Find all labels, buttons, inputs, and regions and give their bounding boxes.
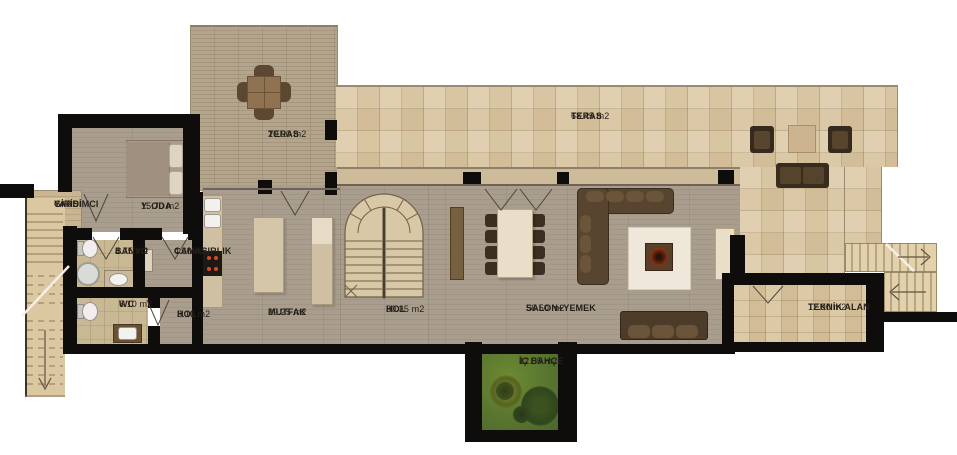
sofa-cushion (606, 191, 624, 202)
sofa-cushion (652, 325, 674, 338)
room-area: 68.45 m2 (571, 111, 609, 123)
room-area: 4.75 m2 (115, 246, 148, 258)
dining-chair (531, 230, 545, 243)
sofa-cushion (580, 255, 591, 273)
kitchen-sink-icon (204, 214, 221, 228)
toilet-icon (82, 302, 98, 321)
floor-seam (340, 186, 341, 344)
wall-pillar (325, 120, 337, 140)
room-area: 12.05 m2 (519, 356, 557, 368)
glass-wall-line (337, 184, 740, 186)
terrace-table (247, 76, 281, 109)
wall (192, 192, 203, 344)
dining-chair (531, 246, 545, 259)
wall (722, 273, 884, 285)
wall (0, 184, 34, 198)
wall (58, 114, 198, 128)
room-area: 29.25 m2 (268, 307, 306, 319)
wc-basin-icon (118, 327, 137, 340)
room-area: 4.60 m2 (174, 246, 207, 258)
exterior-stairs-lower (884, 272, 937, 312)
wall (884, 312, 957, 322)
side-table (788, 125, 816, 153)
floor-seam (428, 186, 429, 344)
toilet-icon (82, 239, 98, 258)
wall (722, 273, 734, 352)
room-area: 15.70 m2 (141, 201, 179, 213)
room-area: 12.90 m2 (808, 302, 846, 314)
sofa-cushion (676, 325, 698, 338)
wall (465, 342, 482, 442)
room-area: 56.50 m2 (526, 303, 564, 315)
wall (63, 228, 92, 240)
sideboard (450, 207, 464, 280)
sofa-cushion (628, 325, 650, 338)
service-stairs-floor (25, 198, 65, 397)
wall-pillar (325, 172, 337, 195)
wall (63, 287, 203, 298)
wall (722, 342, 884, 352)
sofa-cushion (580, 215, 591, 233)
dining-table (497, 209, 533, 278)
room-area: 6.10 m2 (119, 299, 152, 311)
kitchen-cabinet-top (312, 218, 332, 244)
plant (496, 382, 514, 400)
round-bathtub-icon (76, 262, 100, 286)
exterior-stairs-upper (845, 243, 937, 272)
stove-burner-icon (207, 267, 211, 271)
sofa-cushion (780, 167, 801, 184)
terrace-chair (254, 108, 274, 120)
sofa-cushion (803, 167, 824, 184)
glass-wall-line (203, 188, 340, 190)
room-area: 3.10 m2 (177, 309, 210, 321)
dining-chair (531, 262, 545, 275)
room-area: 30.35 m2 (386, 304, 424, 316)
main-terrace-floor-corner (845, 167, 882, 243)
technical-room-floor (734, 285, 866, 342)
plant (513, 406, 530, 423)
wall (120, 228, 162, 240)
room-name: GİRİSİ (54, 199, 82, 211)
small-hall-floor (160, 298, 192, 344)
room-area: 20.90 m2 (268, 129, 306, 141)
sofa-cushion (586, 191, 604, 202)
vanity-basin-icon (109, 273, 128, 286)
wall (63, 344, 735, 354)
wall-pillar (258, 180, 272, 194)
stove-burner-icon (214, 267, 218, 271)
terrace-threshold (337, 167, 740, 185)
bed-duvet (126, 142, 170, 196)
sofa-cushion (646, 191, 664, 202)
armchair-cushion (832, 131, 848, 149)
fire-bowl-icon (650, 248, 668, 266)
bed-pillow (169, 171, 183, 195)
sofa-cushion (580, 235, 591, 253)
floor-plan-canvas: YARDIMCI GİRİSİ Y. ODA 15.70 m2 BANYO 4.… (0, 0, 957, 455)
armchair-cushion (754, 131, 770, 149)
sofa-cushion (626, 191, 644, 202)
wall (58, 114, 72, 192)
dining-chair (531, 214, 545, 227)
terrace-chair (280, 82, 291, 102)
wall (465, 430, 577, 442)
bed-pillow (169, 144, 183, 168)
kitchen-sink-icon (204, 198, 221, 212)
kitchen-island (253, 217, 284, 293)
wall (148, 326, 160, 344)
